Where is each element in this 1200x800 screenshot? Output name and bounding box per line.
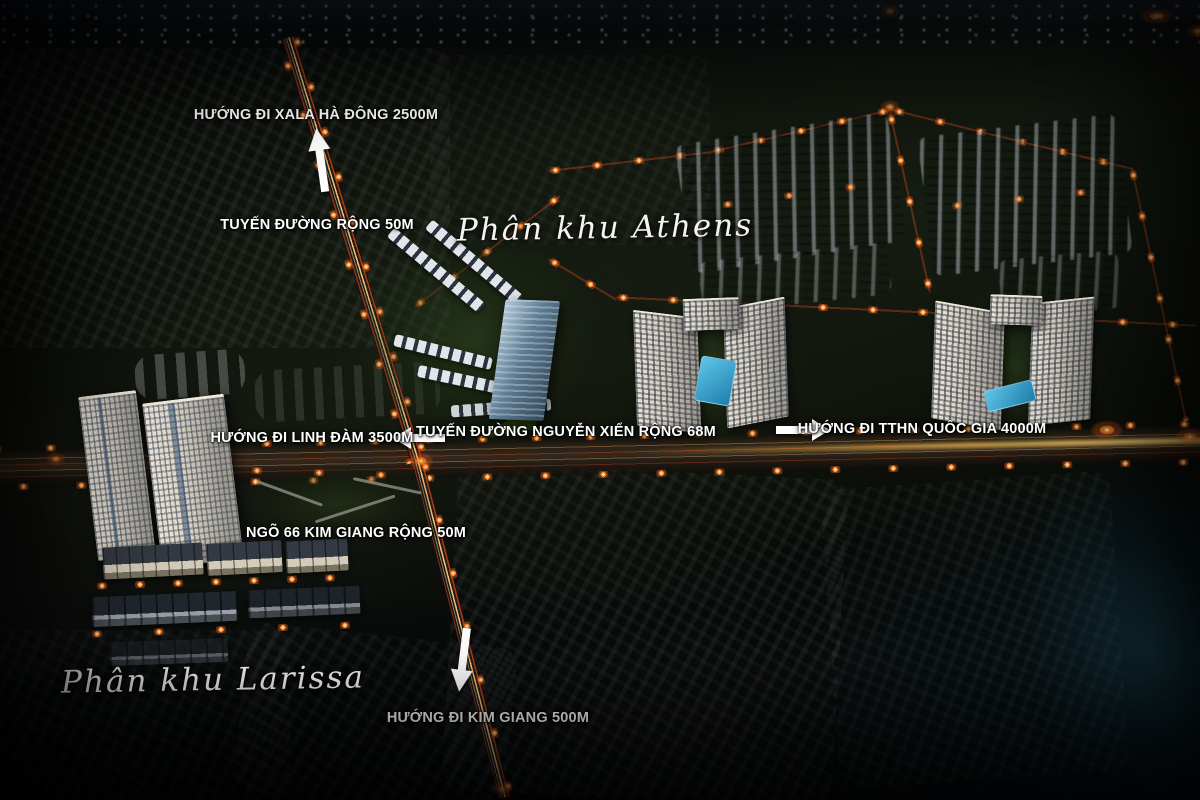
apartment-wing [683,297,740,331]
horizon-glow [880,4,900,18]
arrow-head [448,669,473,694]
road-label-linhdam: HƯỚNG ĐI LINH ĐÀM 3500M [210,430,413,446]
horizon-glow [1185,24,1200,38]
shophouse-row-solar [247,586,360,619]
apartment-wing [989,294,1042,326]
intersection-glow [408,452,434,470]
road-glow [880,100,900,114]
road-label-kimgiang: HƯỚNG ĐI KIM GIANG 500M [387,710,589,726]
park-path [353,477,422,494]
apartment-complex-center [631,293,796,440]
road-glow [1090,420,1124,440]
road-label-tuyen50: TUYẾN ĐƯỜNG RỘNG 50M [220,217,414,233]
arrow-shaft [458,628,471,671]
road-glow [46,452,66,466]
road-glow [1175,428,1200,446]
horizon-city-lights [0,0,1200,46]
shophouse-row-solar [91,591,237,627]
villa-road-lights [1129,168,1190,422]
shophouse-row [206,540,283,576]
road-label-ngo66: NGÕ 66 KIM GIANG RỘNG 50M [246,525,466,541]
apartment-slabs [134,348,247,401]
shophouse-row [102,542,204,579]
horizon-glow [1140,8,1174,24]
shophouse-row [285,538,349,573]
road-label-xala: HƯỚNG ĐI XALA HÀ ĐÔNG 2500M [194,107,438,123]
road-glow [492,782,512,796]
park-path [256,480,323,507]
zone-label-athens: Phân khu Athens [457,207,754,248]
park-path [315,495,396,524]
arrow-shaft [315,148,329,193]
road-label-tthn: HƯỚNG ĐI TTHN QUỐC GIA 4000M [798,421,1047,437]
athens-central-cluster [365,240,580,435]
masterplan-night-aerial: HƯỚNG ĐI XALA HÀ ĐÔNG 2500M TUYẾN ĐƯỜNG … [0,0,1200,800]
zone-label-larissa: Phân khu Larissa [61,659,365,700]
road-label-nguyenxien: TUYẾN ĐƯỜNG NGUYỄN XIỂN RỘNG 68M [416,424,716,440]
